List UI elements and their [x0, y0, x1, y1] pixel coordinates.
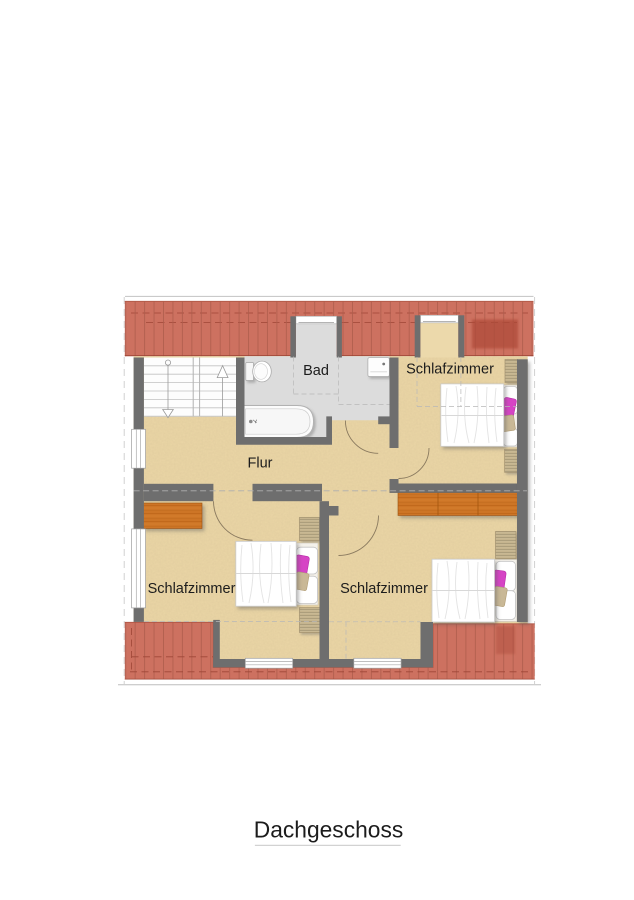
- svg-text:Schlafzimmer: Schlafzimmer: [148, 581, 236, 597]
- svg-text:Schlafzimmer: Schlafzimmer: [340, 581, 428, 597]
- svg-text:Flur: Flur: [248, 456, 273, 472]
- svg-text:Dachgeschoss: Dachgeschoss: [254, 816, 404, 842]
- svg-text:Bad: Bad: [303, 363, 329, 379]
- svg-text:Schlafzimmer: Schlafzimmer: [406, 361, 494, 377]
